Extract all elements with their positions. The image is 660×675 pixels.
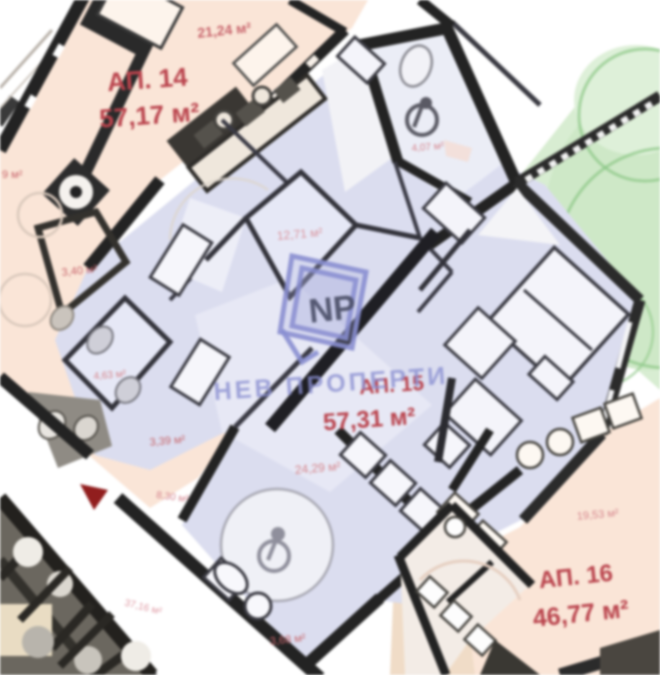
svg-text:9 м²: 9 м² (2, 169, 23, 181)
svg-text:АП. 14: АП. 14 (106, 61, 189, 97)
svg-text:NP: NP (307, 288, 358, 331)
